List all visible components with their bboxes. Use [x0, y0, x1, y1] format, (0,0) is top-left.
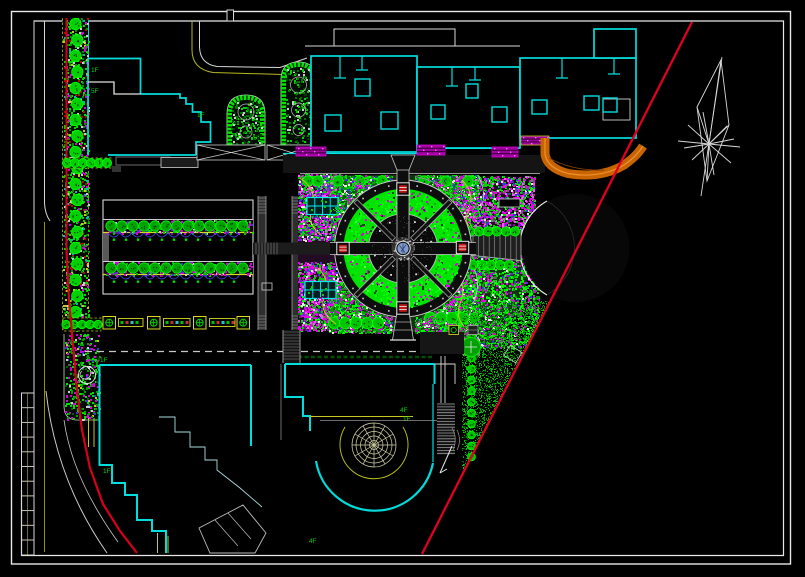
svg-text:1F: 1F: [197, 112, 205, 119]
svg-text:1F: 1F: [403, 416, 411, 423]
svg-text:4F: 4F: [309, 538, 317, 545]
svg-text:5F: 5F: [91, 88, 99, 95]
svg-text:4F: 4F: [400, 407, 408, 414]
svg-text:1F: 1F: [91, 67, 99, 74]
svg-text:1F: 1F: [103, 468, 111, 475]
svg-text:1F: 1F: [100, 357, 108, 364]
